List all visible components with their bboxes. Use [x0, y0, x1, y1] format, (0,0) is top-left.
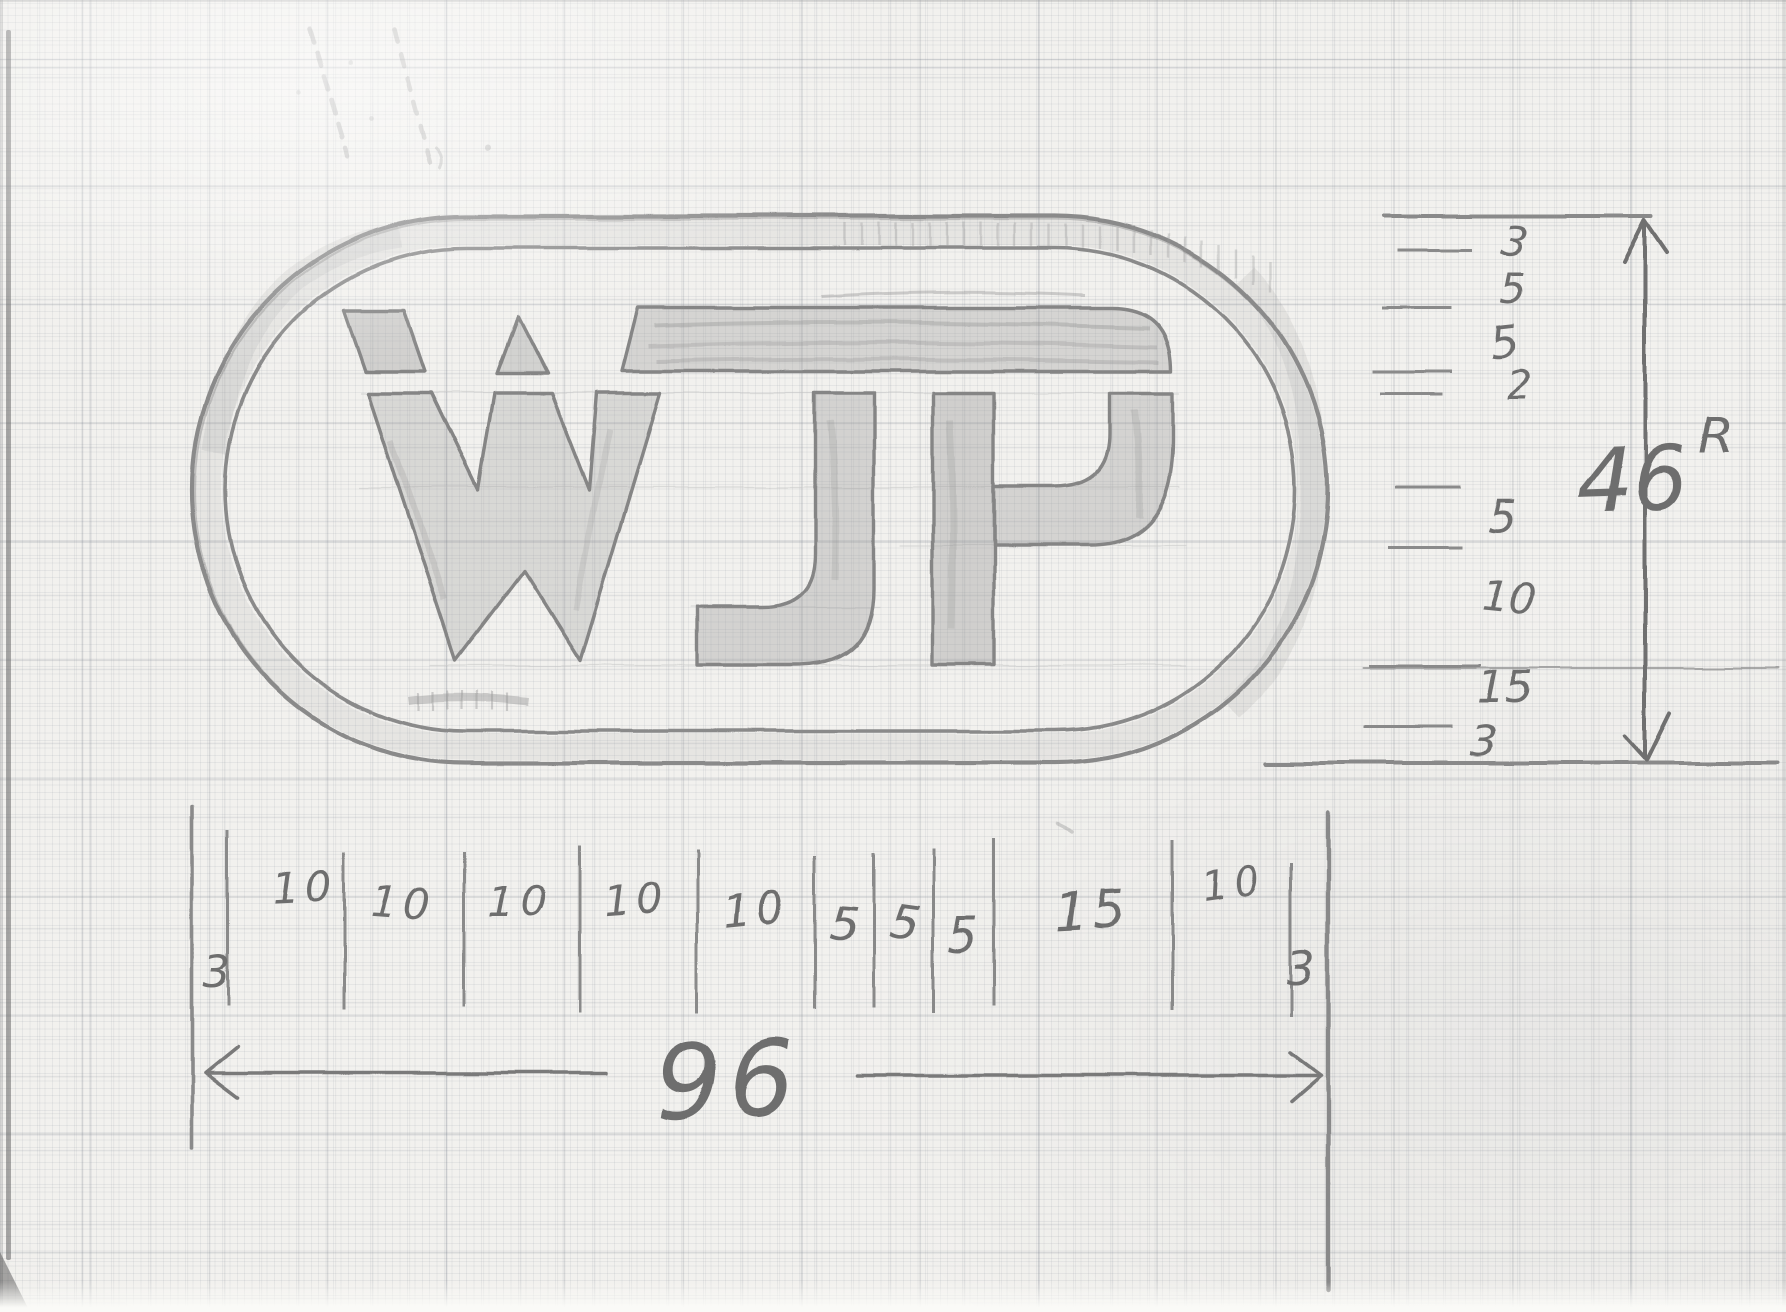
smudge-dot	[348, 60, 353, 65]
scan-corner-blotch	[0, 1252, 30, 1312]
logo-sketch-drawing: 3 5 5 2 5 10 15 3 46 R	[0, 0, 1786, 1312]
letter-p-bowl	[994, 393, 1173, 545]
height-ruler-ticks	[1363, 250, 1480, 727]
scan-left-edge-line	[6, 30, 11, 1260]
width-segment-label: 5	[948, 908, 979, 964]
letter-w-cap-left	[344, 310, 425, 371]
width-segment-label: 5	[887, 893, 924, 951]
width-ruler: 3 10 10 10 10 10 5 5 5 15 10 3	[192, 806, 1328, 1290]
smudge-stroke	[436, 148, 442, 167]
height-segment-label: 3	[1498, 216, 1531, 268]
height-segment-label: 3	[1471, 717, 1498, 766]
height-total-suffix: R	[1699, 406, 1734, 464]
letter-j-body	[697, 393, 874, 665]
width-segment-label: 10	[369, 877, 438, 930]
width-segment-label: 3	[1286, 941, 1315, 995]
width-total-label: 96	[653, 1018, 803, 1145]
smudge-stroke	[310, 28, 348, 156]
height-segment-label: 15	[1476, 661, 1533, 714]
height-segment-label: 10	[1479, 570, 1537, 624]
width-segment-label: 10	[720, 881, 793, 939]
logo-letters-wjp	[344, 293, 1173, 665]
scan-left-edge-shade	[0, 0, 3, 1312]
width-segment-label: 10	[487, 877, 552, 926]
scan-top-edge-shade	[0, 0, 1786, 2]
height-segment-label: 2	[1507, 364, 1532, 410]
height-segment-label: 5	[1500, 265, 1527, 314]
inner-bottom-scribble	[408, 697, 530, 701]
smudge-dot	[370, 116, 375, 121]
height-segment-label: 5	[1487, 315, 1521, 371]
width-segment-label: 10	[271, 861, 339, 913]
letter-w-body	[368, 393, 660, 660]
smudge-dot	[485, 144, 491, 150]
width-segment-label: 5	[827, 896, 861, 952]
scan-right-edge-shade	[1782, 0, 1786, 1312]
height-ruler: 3 5 5 2 5 10 15 3 46 R	[1265, 216, 1780, 766]
height-segment-label: 5	[1489, 490, 1518, 543]
height-total-label: 46	[1574, 426, 1690, 533]
scanned-sketch-page: 3 5 5 2 5 10 15 3 46 R	[0, 0, 1786, 1312]
width-segment-label: 3	[203, 946, 231, 997]
letter-w-cap-triangle	[497, 316, 547, 373]
smudge-dot	[298, 90, 302, 94]
smudge-stroke	[1056, 824, 1072, 832]
letter-p-stem	[933, 393, 994, 665]
down-arrowhead-icon	[1625, 713, 1670, 760]
width-segment-label: 10	[602, 873, 671, 926]
width-segment-label: 15	[1054, 879, 1131, 943]
width-segment-label: 10	[1198, 858, 1271, 913]
smudge-stroke	[394, 30, 432, 170]
